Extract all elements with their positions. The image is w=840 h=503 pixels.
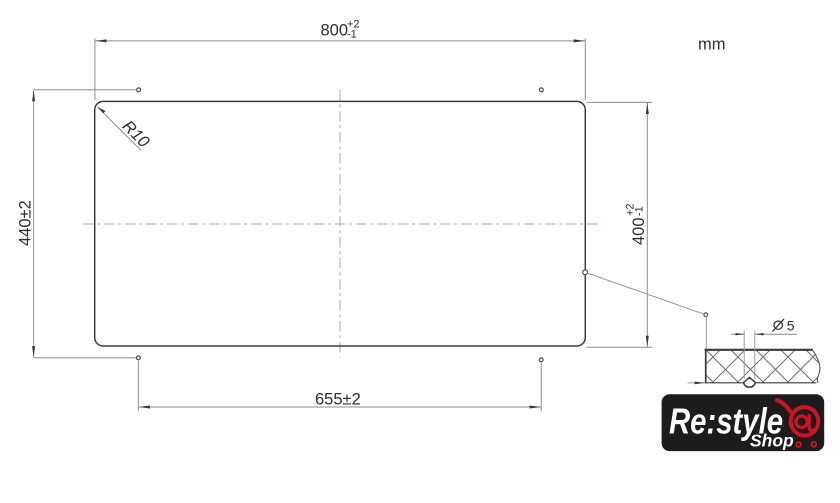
svg-text:400: 400 xyxy=(630,217,648,245)
svg-text:-1: -1 xyxy=(634,206,646,216)
svg-text:Shop: Shop xyxy=(750,431,794,451)
svg-text:5: 5 xyxy=(787,318,795,334)
svg-text:R10: R10 xyxy=(119,117,154,152)
svg-text:440±2: 440±2 xyxy=(17,200,35,246)
svg-text:655±2: 655±2 xyxy=(315,391,361,409)
svg-text:800: 800 xyxy=(321,22,349,40)
svg-text:mm: mm xyxy=(698,36,726,54)
svg-text:-1: -1 xyxy=(347,29,357,41)
